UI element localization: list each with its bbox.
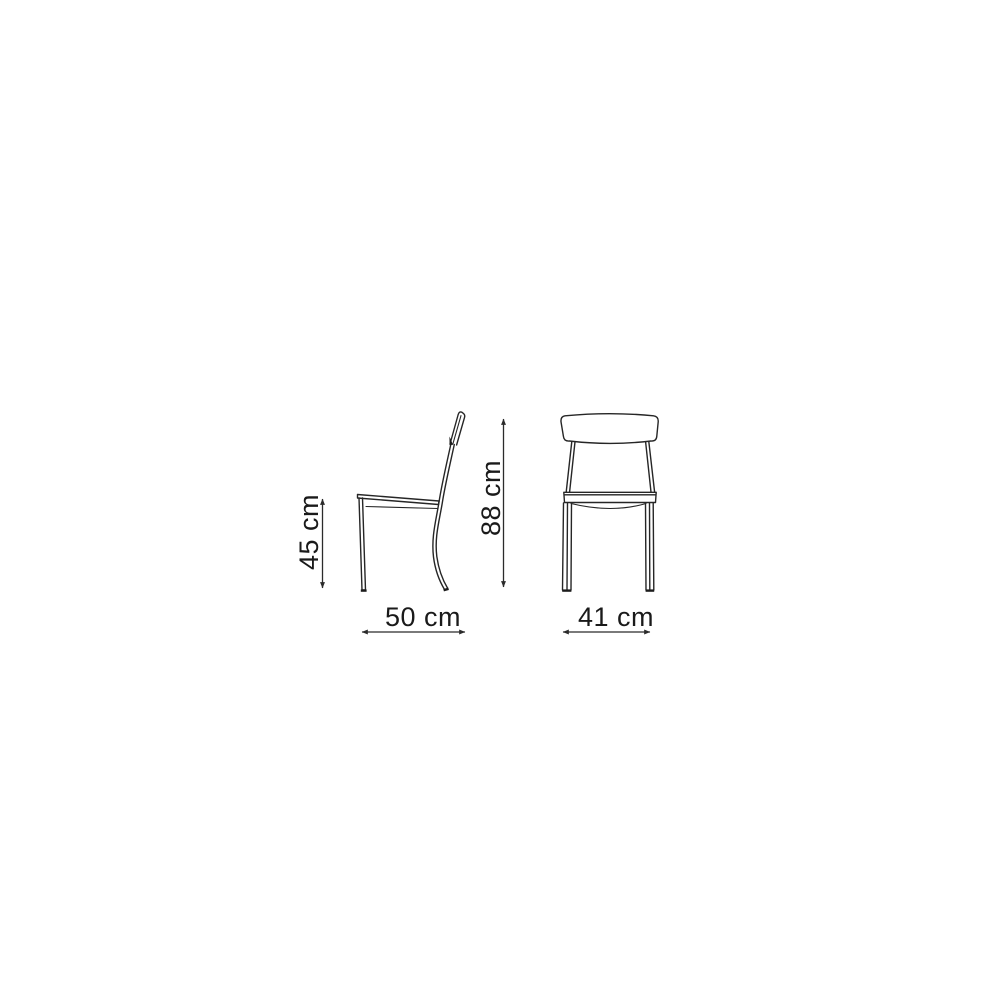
depth-label: 50 cm bbox=[385, 602, 461, 632]
width-label: 41 cm bbox=[578, 602, 654, 632]
technical-drawing-svg: 45 cm 88 cm 50 cm 41 cm bbox=[0, 0, 1000, 1000]
front-seat bbox=[564, 492, 656, 502]
side-front-leg bbox=[359, 498, 366, 590]
side-backrest-inner bbox=[436, 445, 454, 589]
side-rear-foot bbox=[444, 589, 449, 590]
side-seat bbox=[358, 495, 440, 505]
chair-front-view bbox=[561, 414, 658, 591]
front-seat-sag-curve bbox=[571, 504, 646, 509]
dimension-annotations: 45 cm 88 cm 50 cm 41 cm bbox=[294, 419, 654, 632]
side-backrest-outer bbox=[433, 444, 451, 590]
chair-dimension-diagram: 45 cm 88 cm 50 cm 41 cm bbox=[0, 0, 1000, 1000]
side-seat-underline bbox=[366, 507, 438, 509]
front-top-rail bbox=[561, 414, 658, 444]
front-backrest-right-frame bbox=[646, 442, 655, 493]
seat-height-label: 45 cm bbox=[294, 494, 324, 570]
chair-side-view bbox=[358, 412, 465, 591]
front-left-leg bbox=[563, 503, 572, 590]
front-right-leg bbox=[646, 503, 654, 590]
overall-height-label: 88 cm bbox=[476, 460, 506, 536]
front-backrest-left-frame bbox=[566, 442, 575, 493]
